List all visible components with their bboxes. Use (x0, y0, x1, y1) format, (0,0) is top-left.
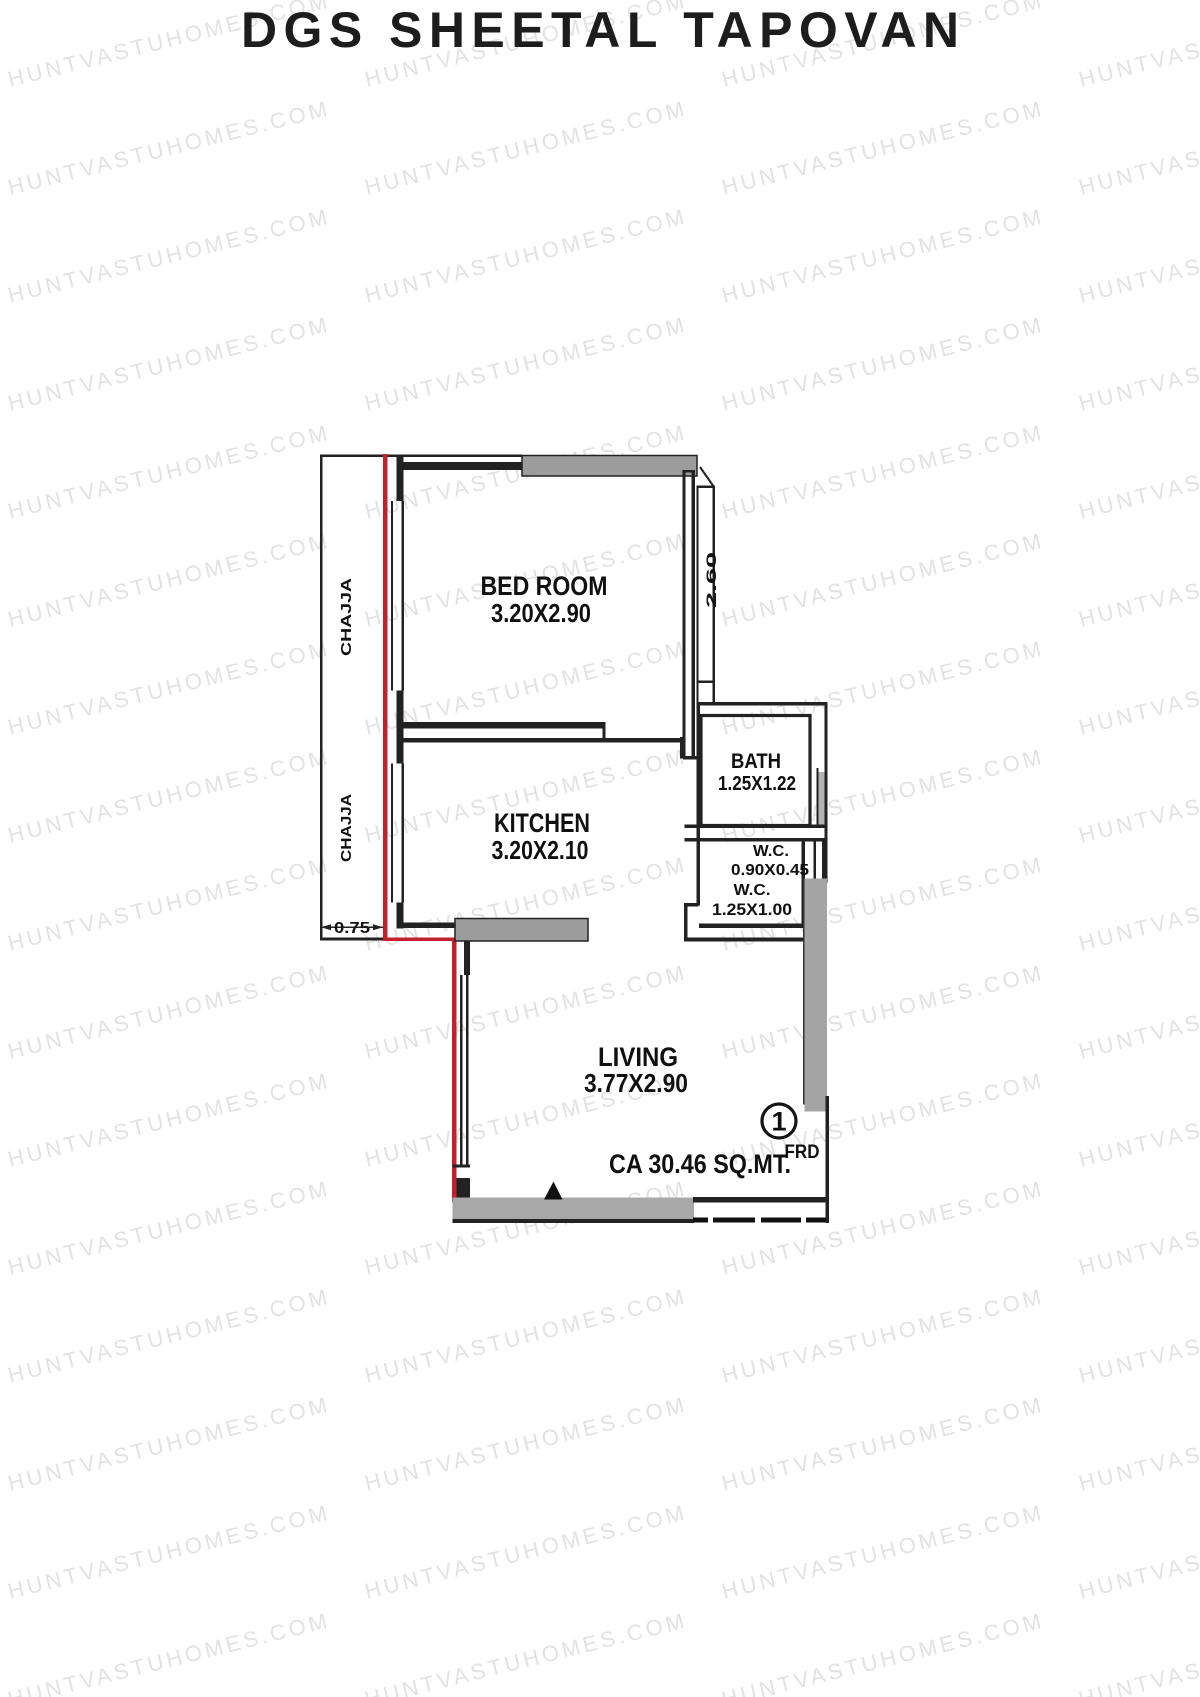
svg-text:BATH: BATH (731, 750, 781, 773)
svg-text:3.77X2.90: 3.77X2.90 (584, 1068, 688, 1098)
svg-text:DGS SHEETAL TAPOVAN: DGS SHEETAL TAPOVAN (241, 2, 959, 58)
svg-text:1.25X1.22: 1.25X1.22 (718, 773, 796, 795)
svg-text:BED ROOM: BED ROOM (481, 571, 608, 601)
svg-text:1: 1 (771, 1107, 786, 1137)
svg-text:CHAJJA: CHAJJA (338, 578, 355, 656)
svg-text:0.75: 0.75 (334, 920, 370, 937)
svg-text:CHAJJA: CHAJJA (338, 794, 355, 862)
svg-text:2.60: 2.60 (703, 552, 719, 608)
svg-text:3.20X2.90: 3.20X2.90 (491, 598, 591, 628)
svg-text:KITCHEN: KITCHEN (494, 808, 590, 838)
svg-text:1.25X1.00: 1.25X1.00 (712, 900, 792, 919)
svg-text:FRD: FRD (785, 1142, 820, 1163)
svg-text:3.20X2.10: 3.20X2.10 (492, 835, 589, 865)
svg-text:CA 30.46 SQ.MT.: CA 30.46 SQ.MT. (609, 1149, 791, 1179)
svg-text:W.C.: W.C. (753, 843, 789, 860)
svg-text:W.C.: W.C. (734, 882, 771, 899)
svg-text:0.90X0.45: 0.90X0.45 (731, 862, 809, 879)
